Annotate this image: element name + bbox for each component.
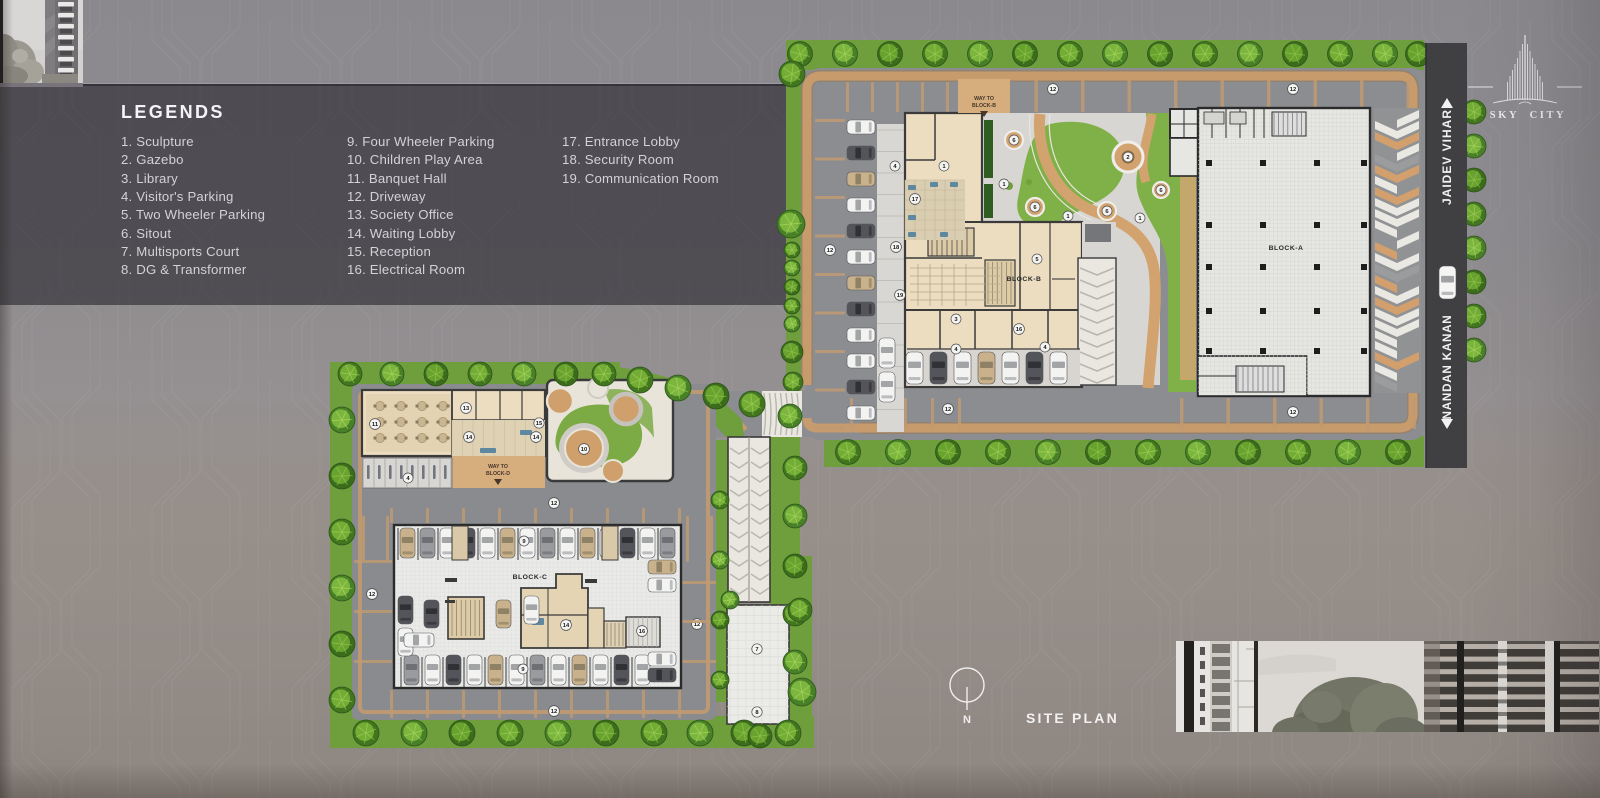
svg-text:12: 12 [945,407,951,413]
svg-text:14: 14 [563,623,570,629]
svg-text:7: 7 [755,647,758,653]
svg-text:12: 12 [551,709,557,715]
svg-text:BLOCK-C: BLOCK-C [513,574,548,581]
svg-text:16: 16 [639,629,646,635]
svg-text:BLOCK-B: BLOCK-B [972,103,996,109]
svg-text:2: 2 [1126,155,1129,161]
svg-text:12: 12 [1050,87,1056,93]
svg-text:N: N [963,714,971,726]
svg-text:WAY TO: WAY TO [488,464,508,470]
svg-text:12: 12 [1290,87,1296,93]
svg-text:11: 11 [372,422,379,428]
svg-text:12: 12 [827,248,833,254]
svg-text:19: 19 [897,293,904,299]
svg-text:12: 12 [369,592,375,598]
svg-text:JAIDEV VIHAR: JAIDEV VIHAR [1440,109,1454,205]
svg-text:12: 12 [551,501,557,507]
svg-text:BLOCK-A: BLOCK-A [1269,245,1304,252]
svg-text:BLOCK-B: BLOCK-B [1007,276,1042,283]
svg-text:12: 12 [1290,410,1296,416]
svg-text:16: 16 [1016,327,1023,333]
svg-text:14: 14 [466,435,473,441]
svg-text:BLOCK-D: BLOCK-D [486,471,510,477]
svg-text:10: 10 [581,447,587,453]
svg-text:13: 13 [463,406,470,412]
svg-text:18: 18 [893,245,900,251]
svg-text:15: 15 [536,421,543,427]
svg-text:17: 17 [912,197,918,203]
svg-text:NANDAN KANAN: NANDAN KANAN [1441,315,1454,420]
svg-text:14: 14 [533,435,540,441]
svg-text:WAY TO: WAY TO [974,96,994,102]
